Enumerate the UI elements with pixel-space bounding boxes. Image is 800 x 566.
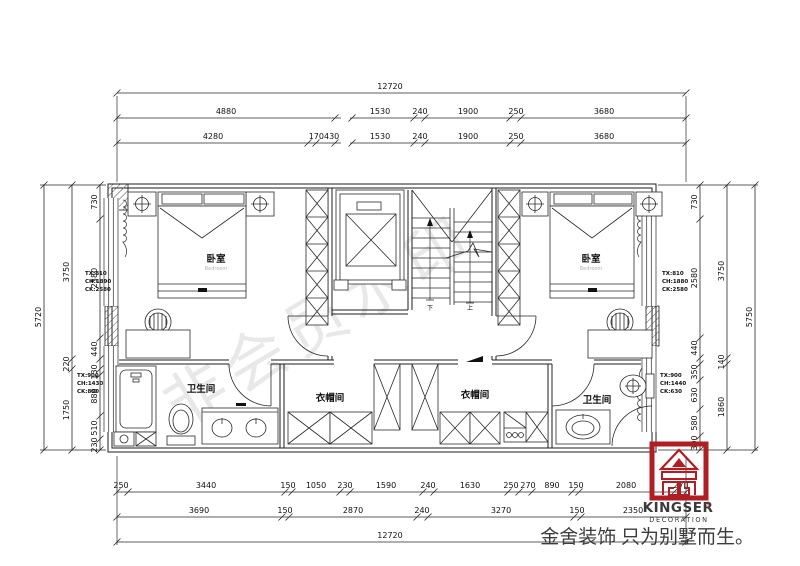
dim-top2-5: 3680 <box>594 107 614 116</box>
elevator <box>334 190 406 290</box>
note-right-upper-2: CH:1880 <box>662 279 688 285</box>
room-label-closet-right: 衣帽间 <box>461 389 490 401</box>
dim-bot1-6: 240 <box>420 481 435 490</box>
threshold-marker <box>466 356 483 362</box>
bed-left <box>128 192 274 298</box>
dim-bot1-0: 250 <box>113 481 128 490</box>
note-right-lower-3: CK:630 <box>660 389 682 395</box>
dim-top3-6: 3680 <box>594 132 614 141</box>
note-right-upper-3: CK:2580 <box>662 287 688 293</box>
dim-right-mid-1: 140 <box>717 354 726 369</box>
vanity-left <box>202 403 278 444</box>
kingser-logo-sub: DECORATION <box>649 516 708 524</box>
dim-top2-2: 240 <box>412 107 427 116</box>
note-left-lower-2: CH:1430 <box>77 381 103 387</box>
note-right-lower-1: TX:900 <box>660 373 682 379</box>
room-label-closet-left: 衣帽间 <box>316 392 345 404</box>
desk-chair-left <box>126 309 190 358</box>
toilet-left <box>167 404 195 445</box>
dim-right-inner-0: 730 <box>690 194 699 209</box>
dim-left-inner-0: 730 <box>90 194 99 209</box>
dim-right-inner-4: 630 <box>690 387 699 402</box>
dim-bot2-6: 2350 <box>623 506 643 515</box>
dim-right-total: 5750 <box>745 307 754 327</box>
dim-top2-3: 1900 <box>458 107 478 116</box>
dim-top2-1: 1530 <box>370 107 390 116</box>
kingser-logo: KINGSER ® DECORATION <box>643 444 714 524</box>
floorplan-page: 非会员水印 <box>0 0 800 566</box>
room-label-bedroom-right: 卧室 <box>581 253 601 265</box>
dim-bot1-11: 150 <box>568 481 583 490</box>
dim-top3-2: 1530 <box>370 132 390 141</box>
hall-cabinet-columns <box>374 364 438 430</box>
toilet-right <box>620 374 654 398</box>
dim-right-mid-0: 3750 <box>717 261 726 281</box>
dim-top-total: 12720 <box>377 82 402 91</box>
dim-chain-right: 730 2580 440 350 630 580 300 3750 140 18… <box>658 182 759 454</box>
dim-bot1-7: 1630 <box>460 481 480 490</box>
dim-bot1-9: 270 <box>520 481 535 490</box>
bathtub <box>116 366 156 432</box>
dim-left-mid-2: 1750 <box>62 400 71 420</box>
dim-bot1-4: 230 <box>337 481 352 490</box>
room-label-bedroom-left: 卧室 <box>206 253 226 265</box>
dim-right-inner-5: 580 <box>690 415 699 430</box>
dim-bot2-0: 3690 <box>189 506 209 515</box>
dim-left-inner-4: 880 <box>90 388 99 403</box>
room-sublabel-bedroom-left: Bedroom <box>205 266 228 272</box>
dim-bot2-2: 2870 <box>343 506 363 515</box>
dim-top3-4: 1900 <box>458 132 478 141</box>
dim-bot2-1: 150 <box>277 506 292 515</box>
dim-bot1-5: 1590 <box>376 481 396 490</box>
stair-up-label: 上 <box>467 304 473 312</box>
dim-right-mid-2: 1860 <box>717 397 726 417</box>
dim-left-total: 5720 <box>34 307 43 327</box>
room-label-bath-left: 卫生间 <box>187 383 216 395</box>
dim-left-inner-1: 2580 <box>90 268 99 288</box>
dim-top3-3: 240 <box>412 132 427 141</box>
sink-right <box>556 410 610 444</box>
dim-bottom-total: 12720 <box>377 531 402 540</box>
room-label-bath-right: 卫生间 <box>583 394 612 406</box>
dim-right-inner-2: 440 <box>690 340 699 355</box>
wardrobe-right <box>498 190 520 325</box>
dim-bot1-8: 250 <box>503 481 518 490</box>
dim-right-inner-1: 2580 <box>690 268 699 288</box>
stair-down-label: 下 <box>427 305 433 312</box>
dim-bot2-3: 240 <box>414 506 429 515</box>
dim-left-mid-0: 3750 <box>62 262 71 282</box>
dim-left-inner-3: 130 <box>90 364 99 379</box>
desk-chair-right <box>588 309 652 358</box>
dim-bot1-12: 2080 <box>616 481 636 490</box>
brand-tagline: 金舍装饰 只为别墅而生。 <box>540 526 754 548</box>
dim-top2-4: 250 <box>508 107 523 116</box>
dim-top3-5: 250 <box>508 132 523 141</box>
dim-left-mid-1: 220 <box>62 356 71 371</box>
dim-top3-1: 170430 <box>309 132 340 141</box>
dim-bot2-4: 3270 <box>491 506 511 515</box>
dim-left-inner-2: 440 <box>90 341 99 356</box>
floorplan-drawing: 非会员水印 <box>0 0 800 566</box>
kingser-logo-name: KINGSER <box>643 500 714 516</box>
closet-right-cabinets <box>440 412 548 444</box>
closet-left-cabinets <box>288 412 372 444</box>
dim-bot2-5: 150 <box>569 506 584 515</box>
wardrobe-left <box>306 190 328 325</box>
dim-left-inner-5: 510 <box>90 420 99 435</box>
bath-cabinet <box>114 432 156 446</box>
dim-bot1-10: 890 <box>544 481 559 490</box>
dim-bot1-2: 150 <box>280 481 295 490</box>
note-right-lower-2: CH:1440 <box>660 381 686 387</box>
note-right-upper-1: TX:810 <box>662 271 684 277</box>
dim-chain-left: 730 2580 440 130 880 510 230 3750 220 17… <box>34 182 106 454</box>
dim-top3-0: 4280 <box>203 132 223 141</box>
dim-bot1-1: 3440 <box>196 481 216 490</box>
dim-left-inner-6: 230 <box>90 437 99 452</box>
dim-bot1-3: 1050 <box>306 481 326 490</box>
dim-right-inner-3: 350 <box>690 364 699 379</box>
kingser-logo-reg: ® <box>705 501 711 508</box>
dim-top2-0: 4880 <box>216 107 236 116</box>
room-sublabel-bedroom-right: Bedroom <box>580 266 603 272</box>
dim-chain-top: 12720 4880 1530 240 1900 250 3680 4280 1… <box>114 82 690 182</box>
